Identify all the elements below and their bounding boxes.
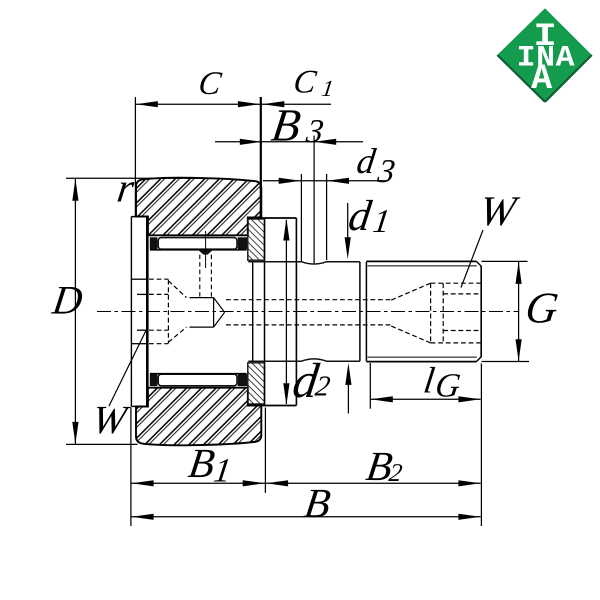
svg-text:G: G: [433, 367, 463, 404]
svg-text:A: A: [531, 59, 552, 99]
svg-text:D: D: [49, 278, 86, 323]
